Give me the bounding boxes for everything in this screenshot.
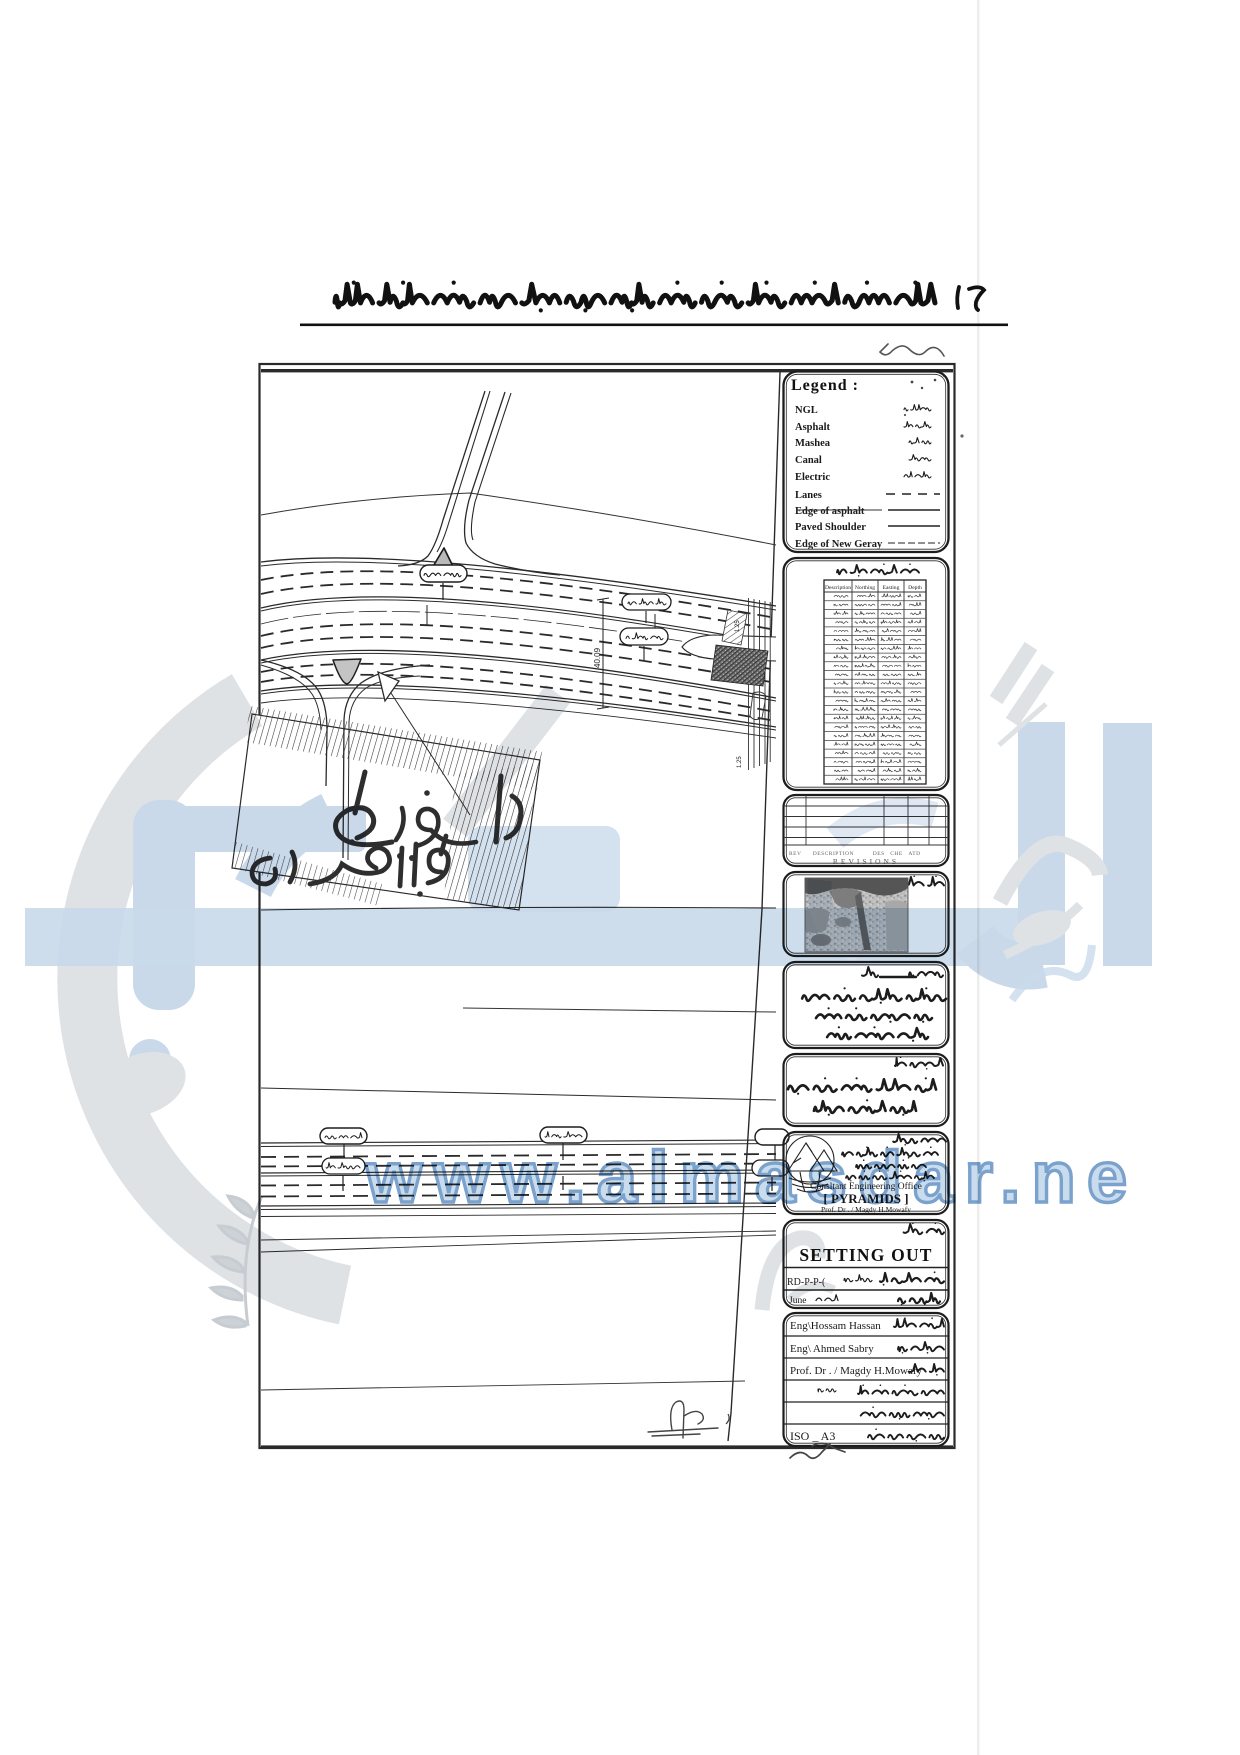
svg-text:Eng\ Ahmed Sabry: Eng\ Ahmed Sabry bbox=[790, 1343, 874, 1355]
svg-text:Mashea: Mashea bbox=[795, 438, 831, 449]
svg-text:Description: Description bbox=[825, 585, 851, 591]
svg-text:1.25: 1.25 bbox=[737, 756, 743, 768]
svg-text:Lanes: Lanes bbox=[795, 490, 822, 501]
svg-text:Edge of New Geray: Edge of New Geray bbox=[795, 539, 883, 550]
svg-text:Legend :: Legend : bbox=[791, 377, 859, 394]
svg-text:REVISIONS: REVISIONS bbox=[833, 857, 899, 866]
svg-text:Edge of asphalt: Edge of asphalt bbox=[795, 506, 865, 517]
svg-text:ISO _ A3: ISO _ A3 bbox=[790, 1429, 835, 1443]
svg-text:Northing: Northing bbox=[855, 585, 875, 591]
svg-text:40.09: 40.09 bbox=[593, 647, 602, 668]
svg-text:Electric: Electric bbox=[795, 472, 830, 483]
svg-text:NGL: NGL bbox=[795, 405, 818, 416]
svg-text:Eng\Hossam Hassan: Eng\Hossam Hassan bbox=[790, 1320, 881, 1332]
svg-text:Asphalt: Asphalt bbox=[795, 422, 831, 433]
svg-text:Canal: Canal bbox=[795, 455, 822, 466]
svg-text:Depth: Depth bbox=[908, 585, 922, 591]
svg-text:Prof. Dr . / Magdy H.Mowafy: Prof. Dr . / Magdy H.Mowafy bbox=[790, 1365, 922, 1377]
svg-text:Easting: Easting bbox=[883, 585, 900, 591]
svg-text:Paved Shoulder: Paved Shoulder bbox=[795, 522, 866, 533]
svg-text:1.25: 1.25 bbox=[735, 620, 741, 632]
